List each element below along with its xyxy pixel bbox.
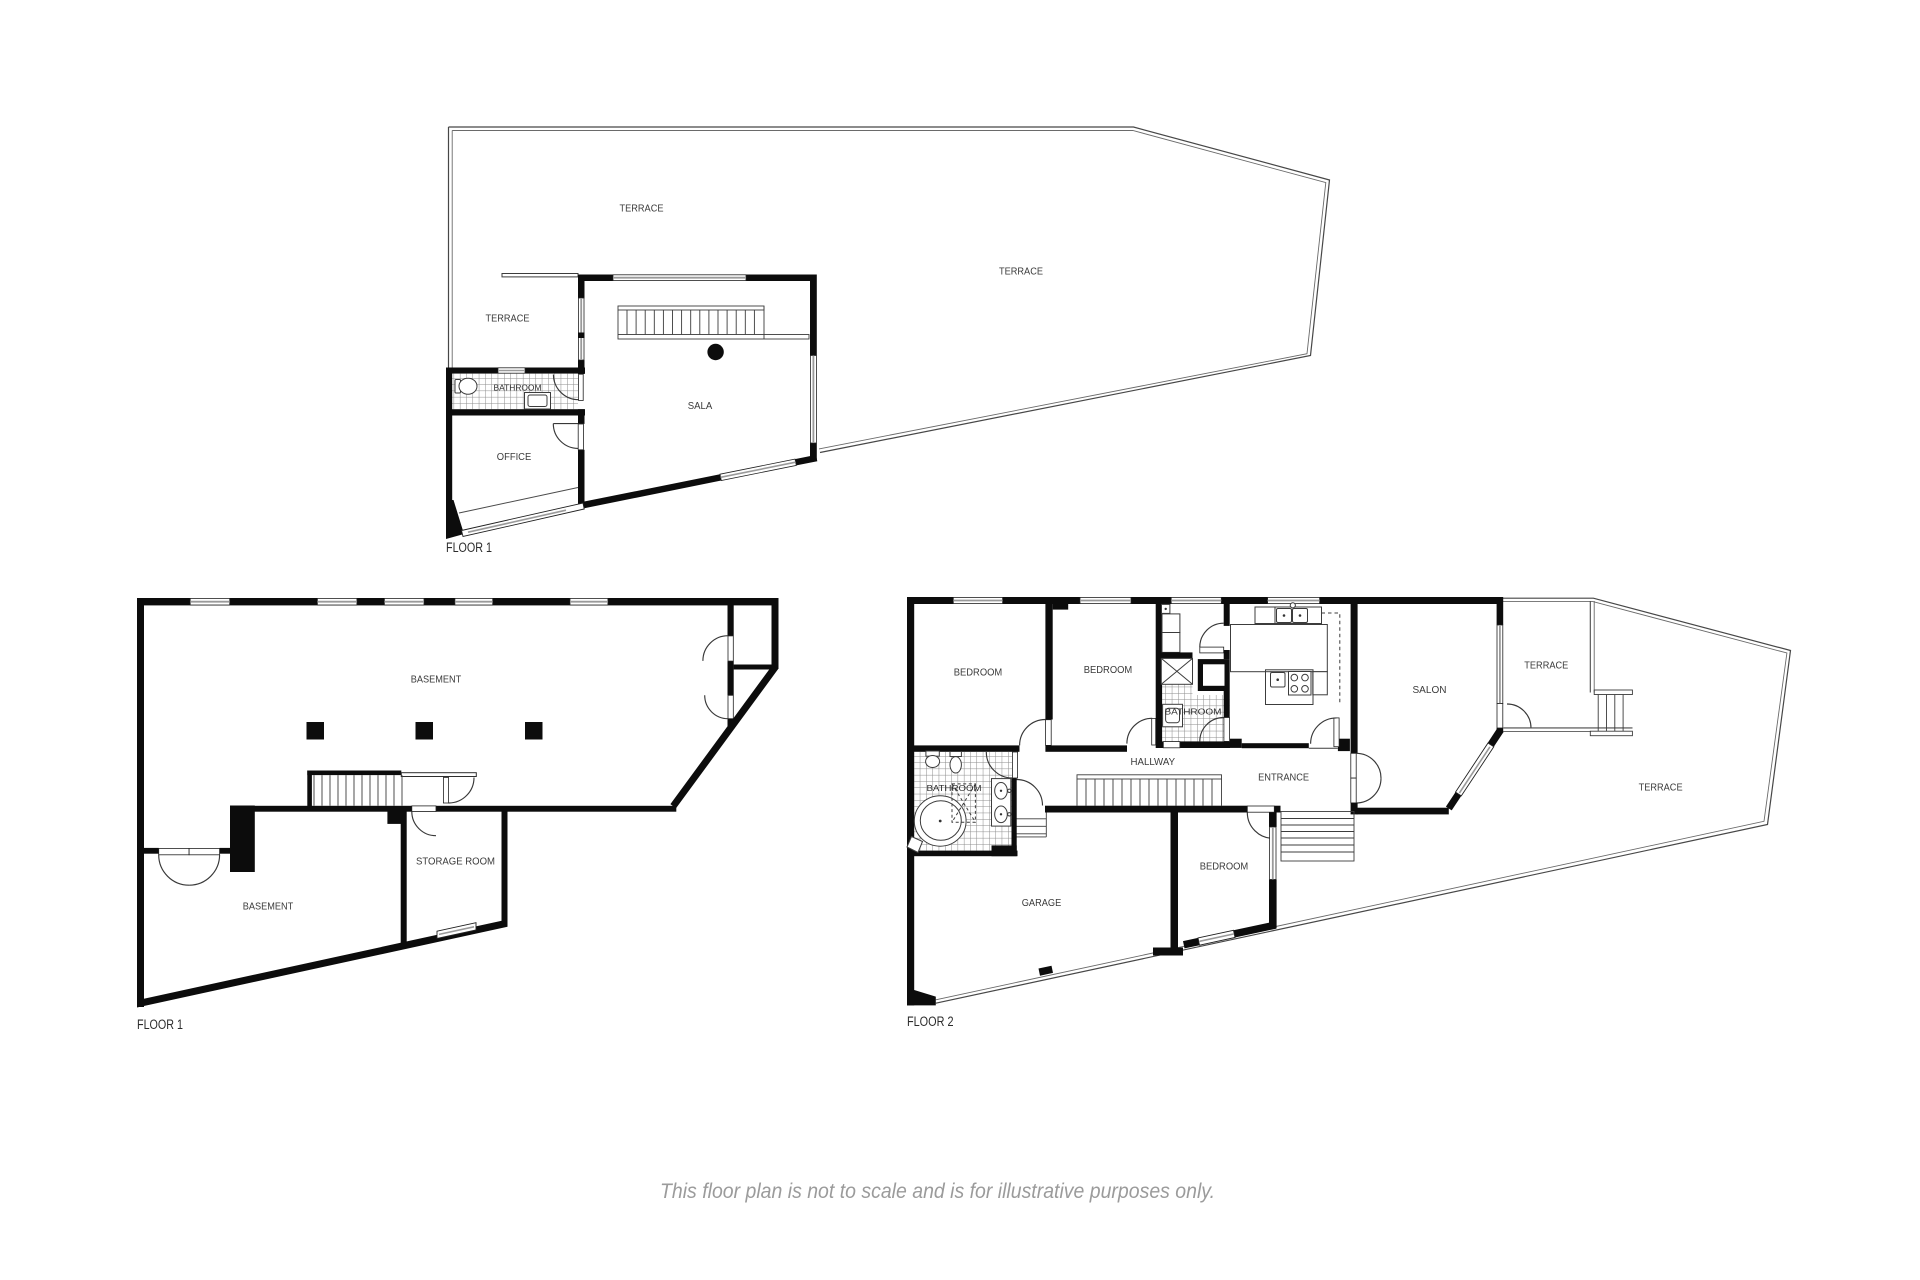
svg-text:HALLWAY: HALLWAY [1131,756,1176,768]
svg-text:FLOOR 1: FLOOR 1 [137,1017,183,1032]
svg-text:TERRACE: TERRACE [486,313,530,325]
svg-text:FLOOR 2: FLOOR 2 [907,1014,954,1029]
svg-text:SALON: SALON [1413,684,1447,696]
svg-text:GARAGE: GARAGE [1022,897,1062,909]
svg-text:SALA: SALA [688,400,713,412]
svg-text:BASEMENT: BASEMENT [411,674,462,686]
svg-text:BEDROOM: BEDROOM [1084,664,1133,676]
svg-text:BATHROOM: BATHROOM [927,784,982,793]
svg-text:ENTRANCE: ENTRANCE [1258,771,1309,783]
svg-text:This floor plan is not to scal: This floor plan is not to scale and is f… [660,1179,1215,1203]
svg-text:BEDROOM: BEDROOM [1200,861,1249,873]
svg-text:BATHROOM: BATHROOM [494,384,542,393]
svg-text:FLOOR 1: FLOOR 1 [446,540,492,555]
svg-text:BASEMENT: BASEMENT [243,901,294,913]
svg-text:TERRACE: TERRACE [1524,659,1568,671]
svg-text:TERRACE: TERRACE [620,203,664,215]
svg-text:OFFICE: OFFICE [497,451,532,463]
svg-text:STORAGE ROOM: STORAGE ROOM [416,856,495,868]
svg-text:TERRACE: TERRACE [1639,781,1683,793]
svg-text:BATHROOM: BATHROOM [1165,708,1222,717]
svg-text:TERRACE: TERRACE [999,266,1043,278]
svg-text:BEDROOM: BEDROOM [954,667,1003,679]
